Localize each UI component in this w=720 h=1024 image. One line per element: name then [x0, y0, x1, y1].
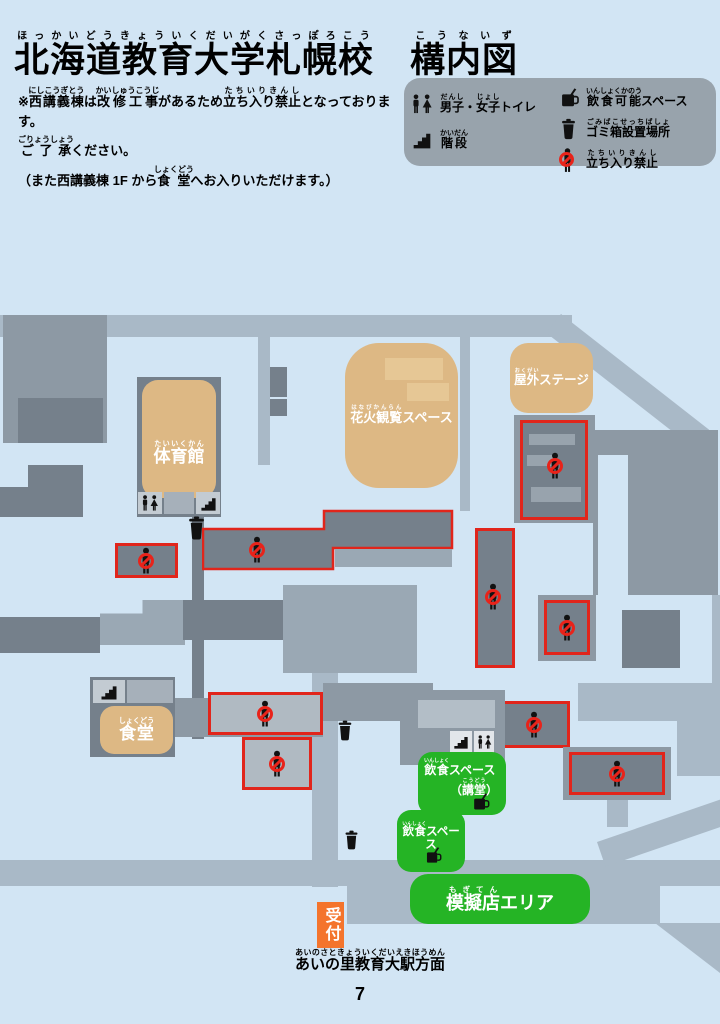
stairs-icon — [410, 128, 434, 152]
notice-line-2: ご了承ごりょうしょうください。 — [18, 135, 413, 161]
no-entry-icon — [482, 583, 504, 610]
legend-item-toilet: 男子だんし・女子じょしトイレ — [410, 92, 556, 116]
central-building — [283, 585, 417, 673]
road — [712, 595, 720, 725]
legend-label-trash: ゴミ箱設置場所ごみばこせっちばしょ — [586, 119, 670, 140]
food-icon — [556, 86, 580, 110]
no-entry-icon — [266, 750, 288, 777]
station-direction-label: あいの里教育大駅方面あいのさときょういくだいえきほうめん — [270, 948, 470, 974]
road — [677, 721, 720, 776]
renovation-notice: ※西講義棟にしこうぎとうは改修工事かいしゅうこうじがあるため立ち入り禁止たちいり… — [18, 86, 413, 194]
gym-label: 体育館たいいくかん — [154, 440, 205, 467]
road — [258, 315, 270, 465]
legend-label-toilet: 男子だんし・女子じょしトイレ — [440, 94, 536, 115]
booth-area-label: 模擬店もぎてんエリア — [446, 885, 554, 914]
food-icon — [470, 792, 490, 812]
no-entry-icon — [544, 452, 566, 479]
fireworks-label: 花火観覧はなびかんらんスペース — [350, 405, 452, 426]
stairs-icon — [453, 734, 469, 750]
gym-area: 体育館たいいくかん — [142, 380, 216, 498]
cafeteria-label: 食堂しょくどう — [119, 717, 155, 744]
trash-icon — [343, 829, 360, 856]
notice-line-3: （また西講義棟 1F から食堂しょくどうへお入りいただけます。） — [18, 165, 413, 191]
legend-column-right: 飲食可能いんしょくかのうスペース ゴミ箱設置場所ごみばこせっちばしょ 立ち入り禁… — [556, 86, 710, 158]
page-title: 北海道教育大学札幌校ほっかいどうきょういくだいがくさっぽろこう 構内図こうないず — [14, 31, 518, 81]
trash-icon — [556, 117, 580, 141]
stairs-icon — [100, 683, 118, 701]
toilet-icon — [410, 92, 434, 116]
no-entry-icon — [246, 536, 268, 563]
building — [100, 600, 185, 645]
trash-icon — [186, 514, 207, 547]
legend-column-left: 男子だんし・女子じょしトイレ 階段かいだん — [410, 86, 556, 158]
decor — [531, 487, 581, 502]
gym-entrance-box — [164, 492, 194, 514]
fireworks-viewing-area: 花火観覧はなびかんらんスペース — [345, 343, 458, 488]
eating-space-hall-label2: （講堂こうどう） — [418, 778, 506, 798]
decor — [407, 383, 449, 401]
toilet-icon — [140, 495, 160, 512]
eating-space: 飲食いんしょくスペース — [397, 810, 465, 872]
gym-toilet-box — [138, 492, 162, 514]
page-number: 7 — [340, 984, 380, 1005]
booth-area: 模擬店もぎてんエリア — [410, 874, 590, 924]
eating-space-hall-label: 飲食いんしょくスペース — [418, 758, 506, 778]
cafeteria-entrance-box — [127, 680, 173, 703]
road-diagonal — [655, 923, 720, 973]
legend-item-stairs: 階段かいだん — [410, 128, 556, 152]
legend-item-food: 飲食可能いんしょくかのうスペース — [556, 86, 710, 110]
building — [270, 367, 287, 397]
no-entry-icon — [556, 148, 580, 172]
notice-line-1: ※西講義棟にしこうぎとうは改修工事かいしゅうこうじがあるため立ち入り禁止たちいり… — [18, 86, 413, 131]
decor — [529, 434, 575, 445]
eating-space-hall: 飲食いんしょくスペース （講堂こうどう） — [418, 752, 506, 815]
legend-label-stairs: 階段かいだん — [440, 130, 468, 151]
legend-label-no-entry: 立ち入り禁止たちいりきんし — [586, 150, 658, 171]
legend-label-food: 飲食可能いんしょくかのうスペース — [586, 88, 688, 109]
courtyard — [598, 455, 628, 595]
decor — [335, 549, 452, 567]
toilet-box — [474, 731, 494, 753]
cafeteria-area: 食堂しょくどう — [100, 706, 173, 754]
building — [622, 610, 680, 668]
stairs-box — [450, 731, 472, 753]
map-legend: 男子だんし・女子じょしトイレ 階段かいだん 飲食可能いんしょくかのうスペース ゴ… — [404, 78, 716, 166]
food-icon — [423, 846, 442, 865]
no-entry-icon — [556, 614, 578, 641]
building — [270, 399, 287, 416]
road — [460, 335, 470, 511]
decor — [385, 358, 443, 380]
legend-item-trash: ゴミ箱設置場所ごみばこせっちばしょ — [556, 117, 710, 141]
no-entry-icon — [523, 711, 545, 738]
reception-badge: 受付 — [317, 902, 344, 948]
no-entry-icon — [254, 700, 276, 727]
trash-icon — [336, 719, 354, 747]
no-entry-icon — [606, 760, 628, 787]
cafeteria-stairs-box — [93, 680, 125, 703]
legend-item-no-entry: 立ち入り禁止たちいりきんし — [556, 148, 710, 172]
campus-map-page: 北海道教育大学札幌校ほっかいどうきょういくだいがくさっぽろこう 構内図こうないず… — [0, 0, 720, 1024]
no-entry-icon — [135, 547, 157, 574]
road — [578, 683, 720, 721]
building — [18, 398, 103, 443]
toilet-icon — [476, 735, 493, 750]
decor — [418, 700, 495, 728]
stage-label: 屋外おくがいステージ — [514, 368, 589, 387]
building — [0, 617, 100, 653]
building — [28, 465, 83, 517]
outdoor-stage-area: 屋外おくがいステージ — [510, 343, 593, 413]
